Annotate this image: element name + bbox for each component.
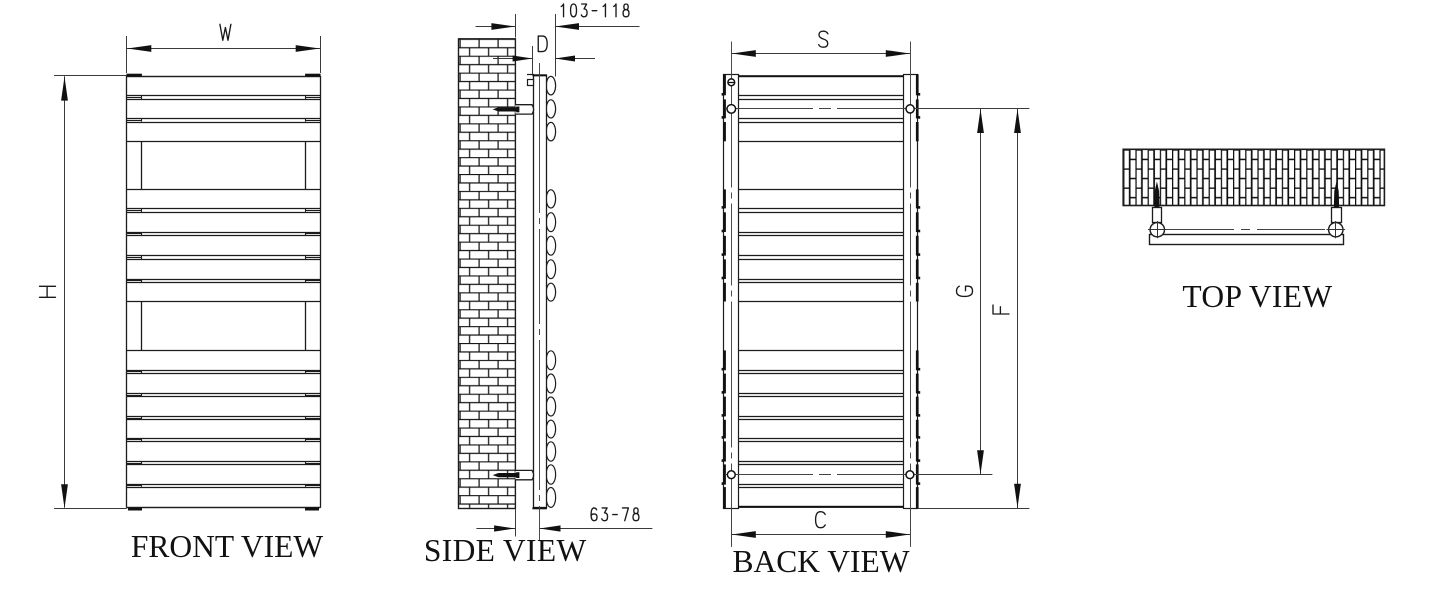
svg-text:FRONT VIEW: FRONT VIEW bbox=[131, 529, 323, 564]
svg-text:SIDE VIEW: SIDE VIEW bbox=[424, 533, 587, 568]
svg-text:TOP VIEW: TOP VIEW bbox=[1182, 279, 1332, 314]
svg-text:BACK VIEW: BACK VIEW bbox=[732, 544, 909, 579]
